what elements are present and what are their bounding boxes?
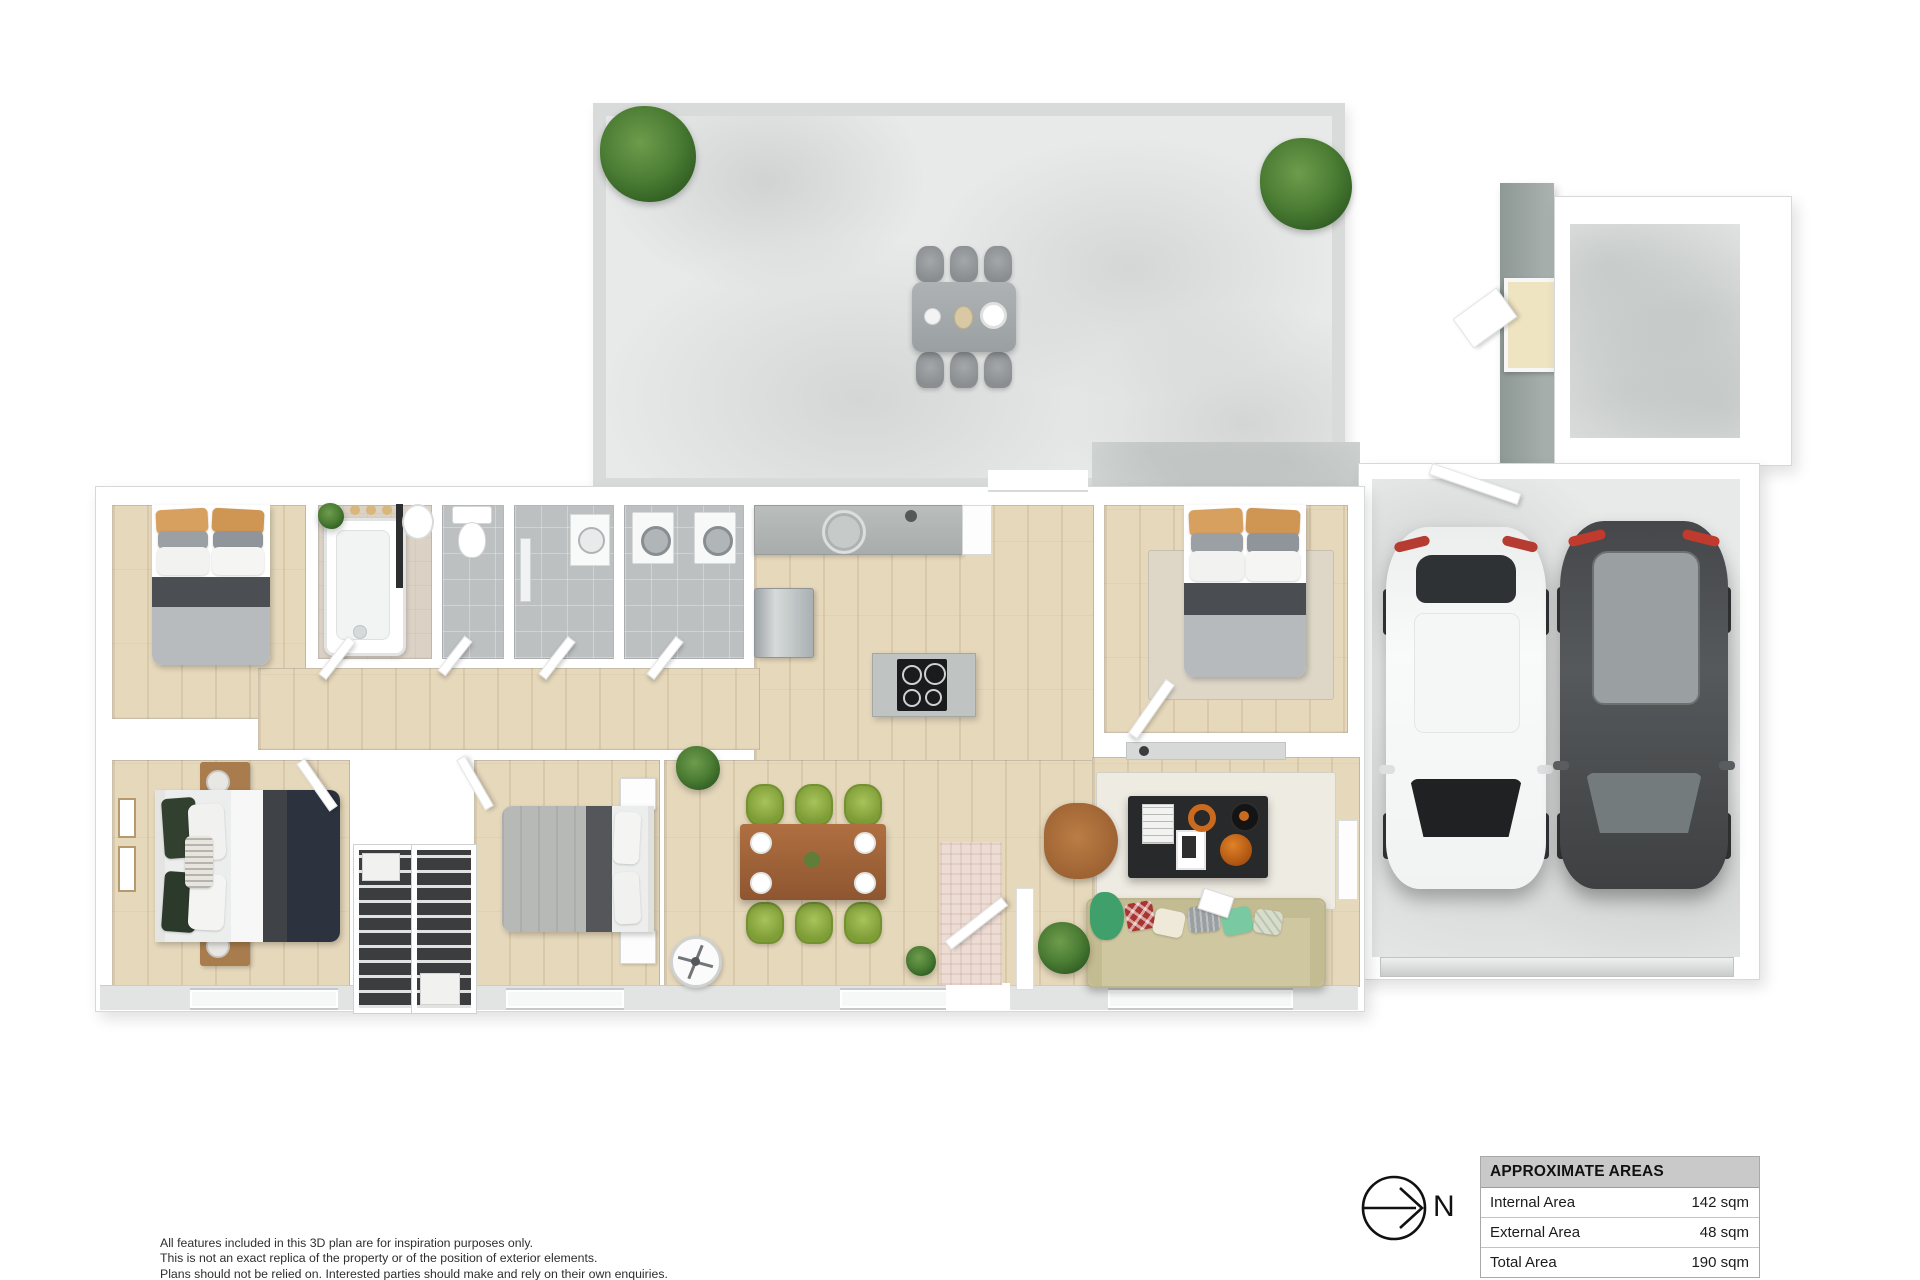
outdoor-chair bbox=[984, 246, 1012, 282]
rear-window bbox=[1416, 555, 1516, 603]
car-dark bbox=[1560, 521, 1728, 889]
bed-single bbox=[502, 806, 654, 932]
washing-machine bbox=[632, 512, 674, 564]
living-cabinet bbox=[1338, 820, 1358, 900]
burner bbox=[924, 663, 946, 685]
armchair bbox=[1044, 803, 1118, 879]
plate bbox=[924, 308, 941, 325]
wall-art bbox=[118, 846, 136, 892]
bed-master bbox=[155, 790, 340, 942]
bathtub bbox=[324, 518, 406, 656]
floor-plan-canvas: N APPROXIMATE AREAS Internal Area 142 sq… bbox=[0, 0, 1920, 1280]
windshield bbox=[1586, 773, 1702, 833]
taillight-icon bbox=[1567, 529, 1606, 548]
pillow bbox=[1191, 533, 1243, 553]
blanket bbox=[586, 806, 612, 932]
floor-plant-icon bbox=[906, 946, 936, 976]
coffee-table bbox=[1128, 796, 1268, 878]
shed-floor bbox=[1570, 224, 1740, 438]
kitchen-cabinet bbox=[962, 505, 992, 555]
plate bbox=[980, 302, 1007, 329]
vanity-light bbox=[382, 505, 392, 515]
duvet bbox=[287, 790, 340, 942]
dryer-door bbox=[703, 526, 733, 556]
dining-chair bbox=[844, 784, 882, 826]
headboard bbox=[648, 806, 654, 932]
tv-console bbox=[1126, 742, 1286, 760]
disclaimer: All features included in this 3D plan ar… bbox=[160, 1236, 668, 1280]
fan-hub bbox=[691, 957, 700, 966]
dining-chair bbox=[746, 784, 784, 826]
table-row: Total Area 190 sqm bbox=[1481, 1248, 1759, 1277]
tub-basin bbox=[336, 530, 390, 640]
outdoor-chair bbox=[950, 246, 978, 282]
table-row: External Area 48 sqm bbox=[1481, 1218, 1759, 1248]
disclaimer-line: Plans should not be relied on. Intereste… bbox=[160, 1267, 668, 1280]
vanity-unit bbox=[570, 514, 610, 566]
dining-plant-icon bbox=[676, 746, 720, 790]
outdoor-chair bbox=[950, 352, 978, 388]
dining-chair bbox=[795, 784, 833, 826]
books bbox=[1142, 804, 1174, 844]
pedestal-fan bbox=[670, 936, 722, 988]
place-setting bbox=[854, 872, 876, 894]
place-setting bbox=[750, 872, 772, 894]
blanket bbox=[1184, 583, 1306, 617]
living-window bbox=[1108, 988, 1293, 1010]
area-label: External Area bbox=[1481, 1218, 1580, 1247]
outdoor-table bbox=[912, 282, 1016, 352]
outdoor-chair bbox=[984, 352, 1012, 388]
car-white bbox=[1386, 527, 1546, 889]
bathroom-plant-icon bbox=[318, 503, 344, 529]
hallway-floor bbox=[258, 668, 760, 750]
area-value: 190 sqm bbox=[1691, 1248, 1759, 1277]
vanity-light bbox=[366, 505, 376, 515]
decor-fruit bbox=[1239, 811, 1249, 821]
drain bbox=[353, 625, 367, 639]
sofa-armrest bbox=[1310, 900, 1324, 986]
place-setting bbox=[750, 832, 772, 854]
cushion bbox=[1124, 900, 1156, 932]
bed-double bbox=[152, 505, 270, 665]
wall-art bbox=[118, 798, 136, 838]
pillow bbox=[185, 836, 213, 888]
centerpiece bbox=[804, 852, 820, 868]
storage-box bbox=[420, 973, 460, 1005]
burner bbox=[903, 689, 921, 707]
patio-plant-icon bbox=[600, 106, 696, 202]
disclaimer-line: This is not an exact replica of the prop… bbox=[160, 1251, 668, 1266]
washer-door bbox=[641, 526, 671, 556]
pillow bbox=[613, 871, 642, 924]
storage-box bbox=[362, 853, 400, 881]
car-body bbox=[1560, 521, 1728, 889]
toilet-bowl bbox=[458, 522, 486, 558]
dining-chair bbox=[795, 902, 833, 944]
basin bbox=[578, 527, 605, 554]
kitchen-island bbox=[872, 653, 976, 717]
entry-wall bbox=[1016, 888, 1034, 990]
master-window bbox=[190, 988, 338, 1010]
compass-north-label: N bbox=[1433, 1190, 1455, 1224]
side-mirror-icon bbox=[1553, 761, 1569, 770]
pillow bbox=[1190, 551, 1244, 581]
sheet bbox=[231, 790, 265, 942]
approximate-areas-table: APPROXIMATE AREAS Internal Area 142 sqm … bbox=[1480, 1156, 1760, 1278]
fridge bbox=[754, 588, 814, 658]
pillow bbox=[1246, 551, 1300, 581]
dresser bbox=[620, 930, 656, 964]
serving-board bbox=[954, 306, 973, 329]
side-walkway bbox=[1092, 442, 1360, 491]
compass-icon bbox=[1356, 1170, 1440, 1246]
cooktop bbox=[897, 659, 947, 711]
decor-bowl bbox=[1220, 834, 1252, 866]
sofa bbox=[1086, 898, 1326, 988]
side-mirror-icon bbox=[1537, 765, 1553, 774]
front-door-opening bbox=[946, 983, 1010, 1010]
decor-bowl-dark bbox=[1230, 802, 1260, 832]
side-mirror-icon bbox=[1379, 765, 1395, 774]
fence-window bbox=[1504, 278, 1558, 372]
area-label: Internal Area bbox=[1481, 1188, 1575, 1217]
areas-table-header: APPROXIMATE AREAS bbox=[1481, 1157, 1759, 1188]
taillight-icon bbox=[1681, 529, 1720, 548]
dryer bbox=[694, 512, 736, 564]
pillow bbox=[212, 547, 264, 575]
pillow bbox=[613, 811, 642, 864]
duvet bbox=[1184, 615, 1306, 677]
framed-print bbox=[1176, 830, 1206, 870]
place-setting bbox=[854, 832, 876, 854]
cushion bbox=[1152, 907, 1187, 939]
decor-ring bbox=[1188, 804, 1216, 832]
towel-rail bbox=[520, 538, 531, 602]
print-art bbox=[1182, 836, 1196, 858]
dining-table bbox=[740, 824, 886, 900]
windshield bbox=[1410, 779, 1522, 837]
throw-blanket bbox=[1090, 892, 1124, 940]
speaker-icon bbox=[1139, 746, 1149, 756]
burner bbox=[902, 665, 922, 685]
duvet bbox=[152, 607, 270, 665]
vanity-light bbox=[350, 505, 360, 515]
burner bbox=[925, 689, 942, 706]
patio-plant-icon bbox=[1260, 138, 1352, 230]
dining-chair bbox=[844, 902, 882, 944]
closet bbox=[354, 845, 416, 1013]
dining-chair bbox=[746, 902, 784, 944]
side-mirror-icon bbox=[1719, 761, 1735, 770]
kettle bbox=[905, 510, 917, 522]
kitchen-sink bbox=[822, 510, 866, 554]
patio-slider-opening bbox=[988, 470, 1088, 492]
taillight-icon bbox=[1393, 535, 1430, 553]
area-value: 142 sqm bbox=[1691, 1188, 1759, 1217]
area-label: Total Area bbox=[1481, 1248, 1557, 1277]
pillow bbox=[157, 547, 209, 575]
cushion bbox=[1252, 908, 1283, 936]
disclaimer-line: All features included in this 3D plan ar… bbox=[160, 1236, 668, 1251]
garage-roller-door bbox=[1380, 957, 1734, 977]
table-row: Internal Area 142 sqm bbox=[1481, 1188, 1759, 1218]
blanket bbox=[152, 577, 270, 609]
sunroof bbox=[1592, 551, 1700, 705]
pillow bbox=[1247, 533, 1299, 553]
closet bbox=[412, 845, 476, 1013]
outdoor-chair bbox=[916, 246, 944, 282]
duvet bbox=[502, 806, 592, 932]
car-roof bbox=[1414, 613, 1520, 733]
area-value: 48 sqm bbox=[1700, 1218, 1759, 1247]
bed-double bbox=[1184, 505, 1306, 677]
outdoor-chair bbox=[916, 352, 944, 388]
living-plant-icon bbox=[1038, 922, 1090, 974]
bedroom-4-window bbox=[506, 988, 624, 1010]
car-body bbox=[1386, 527, 1546, 889]
bathroom-sink bbox=[402, 504, 434, 540]
taillight-icon bbox=[1501, 535, 1538, 553]
